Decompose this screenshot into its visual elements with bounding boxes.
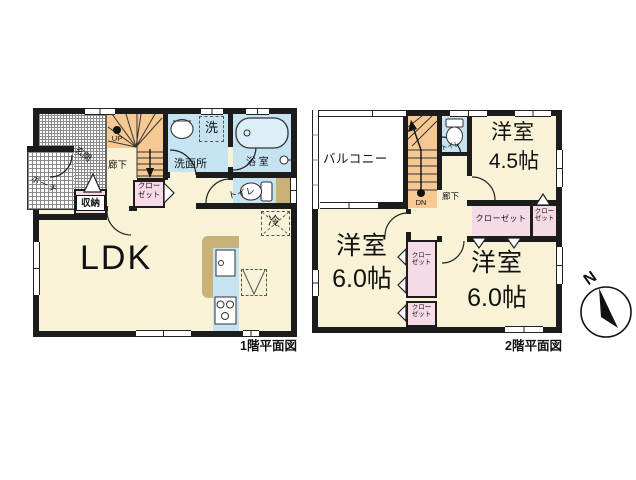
closet-corner-label: クローゼット	[533, 208, 556, 223]
cupboard-v-mark	[243, 270, 265, 294]
floor2-caption: 2階平面図	[482, 339, 562, 353]
fixtures	[171, 118, 463, 324]
hallway1-label: 廊下	[108, 161, 127, 172]
toilet2-icon	[446, 119, 463, 127]
room45-door-arc	[472, 177, 495, 200]
storage-fold-mark	[84, 174, 101, 192]
dn-label: DN	[411, 199, 431, 208]
up-label: UP	[108, 135, 126, 144]
dn-dot	[417, 189, 425, 197]
entrance-door-arc	[50, 155, 72, 177]
room60r-door-arc	[442, 241, 464, 263]
fridge-label: 冷	[268, 215, 280, 229]
laundry-label: 洗	[199, 121, 224, 136]
washroom-label: 洗面所	[174, 158, 207, 171]
rail-ticks	[312, 135, 319, 185]
ldk-label: LDK	[80, 239, 170, 278]
room60l-name: 洋室	[329, 232, 395, 261]
hall-ldk-door-arc	[107, 211, 131, 235]
bath-faucet-icon	[280, 156, 288, 164]
washbasin-icon	[171, 120, 193, 139]
closet-mid1-label: クローゼット	[407, 252, 436, 267]
closet-wide-label: クローゼット	[473, 214, 529, 223]
storage-label: 収納	[76, 195, 105, 211]
toilet1-icon	[261, 182, 272, 201]
room60r-name: 洋室	[464, 249, 530, 278]
room60l-size: 6.0帖	[320, 265, 404, 294]
room45-size: 4.5帖	[481, 150, 547, 174]
balcony-label: バルコニー	[323, 152, 388, 166]
floor1-caption: 1階平面図	[217, 339, 297, 353]
closet1f-label: クローゼット	[135, 182, 163, 199]
room60r-size: 6.0帖	[455, 284, 539, 313]
hallway2-label: 廊下	[442, 192, 459, 202]
floorplan: LDK 玄関 ポーチ 収納 廊下 UP クローゼット 洗面所 洗 浴 室 トイレ…	[0, 0, 636, 480]
bath-label: 浴 室	[246, 157, 269, 169]
up-dot	[113, 126, 121, 134]
closet-mid2-label: クローゼット	[407, 304, 436, 319]
compass-icon	[581, 287, 631, 337]
room45-name: 洋室	[490, 121, 536, 145]
